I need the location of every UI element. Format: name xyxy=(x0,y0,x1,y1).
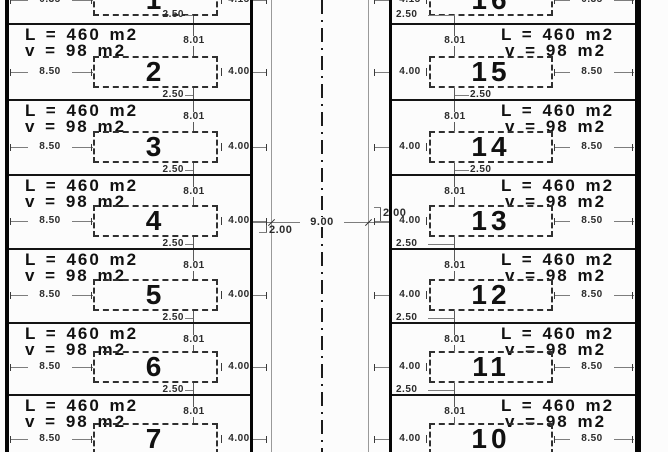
frontage-dim-label: 4.15 xyxy=(396,0,424,5)
sidewalk-right-dim-tick xyxy=(380,207,381,222)
row-border xyxy=(9,394,251,396)
setback-leader xyxy=(455,95,469,96)
frontage-dim-tick xyxy=(374,218,375,225)
side-dim-tick xyxy=(632,292,633,299)
row-border xyxy=(390,174,636,176)
row-border xyxy=(9,322,251,324)
side-dim-label: 8.50 xyxy=(570,142,614,152)
setback-dim-label: 2.50 xyxy=(396,10,428,20)
frontage-dim-tick xyxy=(221,291,222,299)
side-dim-tick xyxy=(554,364,555,371)
side-dim-tick xyxy=(91,144,92,151)
side-dim-label: 8.50 xyxy=(28,142,72,152)
sidewalk-left-label: 2.00 xyxy=(269,225,292,235)
depth-dim-label: 8.01 xyxy=(177,407,211,417)
frontage-dim-label: 4.00 xyxy=(225,216,253,226)
frontage-dim-stub xyxy=(252,0,267,1)
side-dim-label: 8.50 xyxy=(28,434,72,444)
setback-leader xyxy=(185,170,193,171)
row-border xyxy=(9,23,251,25)
side-dim-label: 0.35 xyxy=(570,0,614,5)
frontage-dim-stub xyxy=(252,367,267,368)
side-dim-tick xyxy=(91,69,92,76)
lot-number: 11 xyxy=(429,351,553,383)
side-dim-tick xyxy=(632,218,633,225)
outer-border-left xyxy=(5,0,9,452)
frontage-dim-tick xyxy=(374,69,375,76)
side-dim-tick xyxy=(10,218,11,225)
side-dim-tick xyxy=(91,364,92,371)
road-edge-right xyxy=(389,0,392,452)
side-dim-tick xyxy=(554,436,555,443)
side-dim-label: 8.50 xyxy=(28,216,72,226)
side-dim-tick xyxy=(10,436,11,443)
frontage-dim-tick xyxy=(426,143,427,151)
lot-number: 13 xyxy=(429,205,553,237)
setback-leader xyxy=(428,390,454,391)
frontage-dim-tick xyxy=(266,292,267,299)
frontage-dim-stub xyxy=(374,367,389,368)
side-dim-tick xyxy=(91,0,92,4)
setback-leader xyxy=(185,244,193,245)
setback-leader xyxy=(428,318,454,319)
frontage-dim-tick xyxy=(221,363,222,371)
sidewalk-right-dim-cap xyxy=(374,207,381,208)
frontage-dim-tick xyxy=(266,0,267,4)
setback-leader xyxy=(185,95,193,96)
depth-dim-label: 8.01 xyxy=(438,261,472,271)
side-dim-label: 8.50 xyxy=(570,216,614,226)
side-dim-tick xyxy=(554,0,555,4)
frontage-dim-tick xyxy=(266,218,267,225)
side-dim-tick xyxy=(10,364,11,371)
side-dim-tick xyxy=(632,364,633,371)
frontage-dim-tick xyxy=(426,363,427,371)
side-dim-tick xyxy=(10,292,11,299)
side-dim-label: 8.50 xyxy=(570,434,614,444)
depth-dim-label: 8.01 xyxy=(438,112,472,122)
lot-number: 5 xyxy=(93,279,218,311)
depth-dim-label: 8.01 xyxy=(438,407,472,417)
side-dim-tick xyxy=(632,69,633,76)
frontage-dim-stub xyxy=(374,439,389,440)
row-border xyxy=(390,394,636,396)
side-dim-tick xyxy=(10,69,11,76)
lot-number: 6 xyxy=(93,351,218,383)
frontage-dim-stub xyxy=(252,72,267,73)
frontage-dim-tick xyxy=(266,364,267,371)
setback-leader xyxy=(185,15,193,16)
depth-dim-label: 8.01 xyxy=(438,187,472,197)
frontage-dim-tick xyxy=(426,291,427,299)
depth-dim-label: 8.01 xyxy=(177,261,211,271)
row-border xyxy=(390,322,636,324)
frontage-dim-label: 4.15 xyxy=(225,0,253,5)
side-dim-label: 8.50 xyxy=(28,67,72,77)
frontage-dim-stub xyxy=(374,295,389,296)
side-dim-label: 8.50 xyxy=(28,290,72,300)
depth-dim-label: 8.01 xyxy=(177,112,211,122)
frontage-dim-tick xyxy=(426,68,427,76)
frontage-dim-tick xyxy=(221,435,222,443)
lot-number: 10 xyxy=(429,423,553,452)
frontage-dim-tick xyxy=(374,144,375,151)
sidewalk-line-right xyxy=(368,0,369,452)
lot-number: 2 xyxy=(93,56,218,88)
side-dim-tick xyxy=(10,0,11,4)
frontage-dim-tick xyxy=(426,217,427,225)
frontage-dim-label: 4.00 xyxy=(225,434,253,444)
side-dim-tick xyxy=(91,218,92,225)
frontage-dim-label: 4.00 xyxy=(396,362,424,372)
side-dim-label: 8.50 xyxy=(570,67,614,77)
lot-number: 12 xyxy=(429,279,553,311)
outer-border-right xyxy=(635,0,641,452)
side-dim-tick xyxy=(554,69,555,76)
frontage-dim-tick xyxy=(374,436,375,443)
lot-number: 7 xyxy=(93,423,218,452)
frontage-dim-label: 4.00 xyxy=(225,362,253,372)
side-dim-label: 8.50 xyxy=(28,362,72,372)
road-edge-left xyxy=(250,0,253,452)
row-border xyxy=(390,23,636,25)
frontage-dim-stub xyxy=(252,439,267,440)
frontage-dim-label: 4.00 xyxy=(396,142,424,152)
frontage-dim-stub xyxy=(374,0,389,1)
side-dim-tick xyxy=(632,144,633,151)
frontage-dim-label: 4.00 xyxy=(396,434,424,444)
frontage-dim-label: 4.00 xyxy=(225,67,253,77)
lot-number: 3 xyxy=(93,131,218,163)
side-dim-label: 8.50 xyxy=(570,362,614,372)
frontage-dim-label: 4.00 xyxy=(225,290,253,300)
frontage-dim-tick xyxy=(426,0,427,4)
frontage-dim-tick xyxy=(266,69,267,76)
sidewalk-left-dim-foot xyxy=(259,232,267,233)
row-border xyxy=(9,174,251,176)
frontage-dim-stub xyxy=(252,147,267,148)
lot-number: 16 xyxy=(429,0,553,16)
frontage-dim-tick xyxy=(221,68,222,76)
frontage-dim-tick xyxy=(266,436,267,443)
row-border xyxy=(9,99,251,101)
frontage-dim-tick xyxy=(221,0,222,4)
frontage-dim-tick xyxy=(426,435,427,443)
row-border xyxy=(390,99,636,101)
depth-dim-label: 8.01 xyxy=(177,187,211,197)
side-dim-tick xyxy=(554,292,555,299)
setback-leader xyxy=(185,390,193,391)
frontage-dim-tick xyxy=(374,364,375,371)
frontage-dim-stub xyxy=(252,295,267,296)
lot-number: 14 xyxy=(429,131,553,163)
frontage-dim-tick xyxy=(374,292,375,299)
frontage-dim-tick xyxy=(374,0,375,4)
lot-number: 15 xyxy=(429,56,553,88)
site-plan-drawing: 9.00 2.00 2.00 10.354.152.50160.354.152.… xyxy=(0,0,668,452)
depth-dim-label: 8.01 xyxy=(438,335,472,345)
setback-leader xyxy=(185,318,193,319)
side-dim-tick xyxy=(632,0,633,4)
frontage-dim-label: 4.00 xyxy=(396,67,424,77)
row-border xyxy=(390,248,636,250)
setback-dim-label: 2.50 xyxy=(146,10,184,20)
side-dim-label: 8.50 xyxy=(570,290,614,300)
side-dim-tick xyxy=(554,144,555,151)
frontage-dim-stub xyxy=(374,221,389,222)
frontage-dim-label: 4.00 xyxy=(225,142,253,152)
row-border xyxy=(9,248,251,250)
side-dim-tick xyxy=(91,436,92,443)
lot-number: 4 xyxy=(93,205,218,237)
side-dim-tick xyxy=(10,144,11,151)
side-dim-tick xyxy=(554,218,555,225)
side-dim-tick xyxy=(91,292,92,299)
frontage-dim-label: 4.00 xyxy=(396,216,424,226)
frontage-dim-tick xyxy=(266,144,267,151)
frontage-dim-tick xyxy=(221,143,222,151)
depth-dim-label: 8.01 xyxy=(177,335,211,345)
depth-dim-label: 8.01 xyxy=(438,36,472,46)
frontage-dim-stub xyxy=(252,221,267,222)
setback-leader xyxy=(428,244,454,245)
side-dim-label: 0.35 xyxy=(28,0,72,5)
frontage-dim-stub xyxy=(374,72,389,73)
depth-dim-label: 8.01 xyxy=(177,36,211,46)
frontage-dim-stub xyxy=(374,147,389,148)
frontage-dim-label: 4.00 xyxy=(396,290,424,300)
frontage-dim-tick xyxy=(221,217,222,225)
side-dim-tick xyxy=(632,436,633,443)
setback-leader xyxy=(428,15,454,16)
road-width-label: 9.00 xyxy=(300,217,344,227)
setback-leader xyxy=(455,170,469,171)
